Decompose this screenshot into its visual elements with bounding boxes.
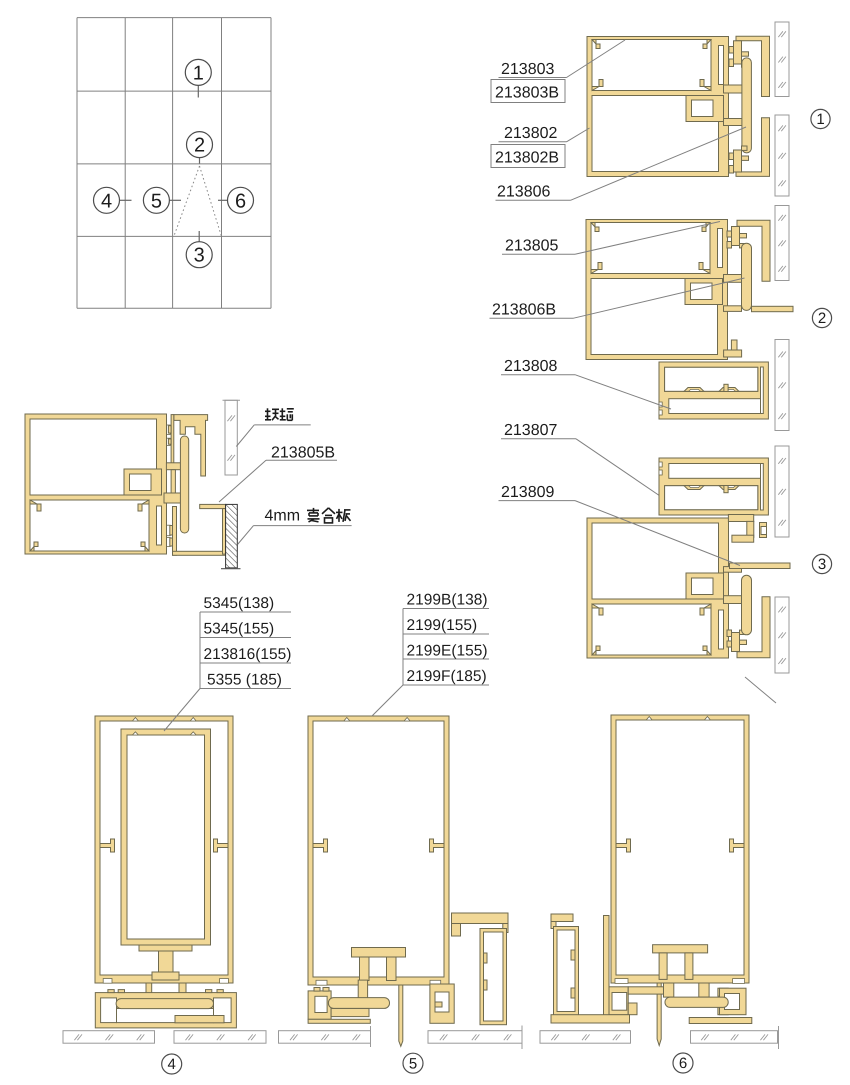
svg-text:213807: 213807 xyxy=(504,422,557,439)
svg-text:2199F(185): 2199F(185) xyxy=(407,668,487,685)
svg-text:213808: 213808 xyxy=(504,358,557,375)
svg-text:213803: 213803 xyxy=(501,61,554,78)
svg-text:2199(155): 2199(155) xyxy=(407,617,478,634)
svg-text:5345(155): 5345(155) xyxy=(204,621,275,638)
svg-text:213806B: 213806B xyxy=(492,302,556,319)
svg-text:2: 2 xyxy=(194,135,205,157)
svg-text:2: 2 xyxy=(818,310,826,327)
svg-text:4: 4 xyxy=(101,190,112,212)
svg-text:6: 6 xyxy=(679,1055,687,1072)
svg-text:6: 6 xyxy=(235,190,246,212)
svg-text:213802: 213802 xyxy=(504,125,557,142)
svg-text:213805: 213805 xyxy=(505,238,558,255)
svg-text:2199E(155): 2199E(155) xyxy=(407,643,488,660)
svg-text:4: 4 xyxy=(168,1056,176,1073)
svg-text:2199B(138): 2199B(138) xyxy=(407,592,488,609)
svg-text:1: 1 xyxy=(816,111,824,128)
svg-text:213802B: 213802B xyxy=(495,150,559,167)
svg-text:5345(138): 5345(138) xyxy=(204,595,275,612)
svg-text:213803B: 213803B xyxy=(495,85,559,102)
svg-text:213809: 213809 xyxy=(501,484,554,501)
svg-text:4mm: 4mm xyxy=(265,508,301,525)
svg-text:5355 (185): 5355 (185) xyxy=(207,672,282,689)
svg-text:3: 3 xyxy=(818,556,826,573)
svg-text:213816(155): 213816(155) xyxy=(204,646,292,663)
svg-text:213806: 213806 xyxy=(497,184,550,201)
svg-text:5: 5 xyxy=(409,1056,417,1073)
svg-text:3: 3 xyxy=(194,245,205,267)
svg-text:1: 1 xyxy=(193,62,204,84)
svg-text:213805B: 213805B xyxy=(271,445,335,462)
svg-text:5: 5 xyxy=(151,190,162,212)
